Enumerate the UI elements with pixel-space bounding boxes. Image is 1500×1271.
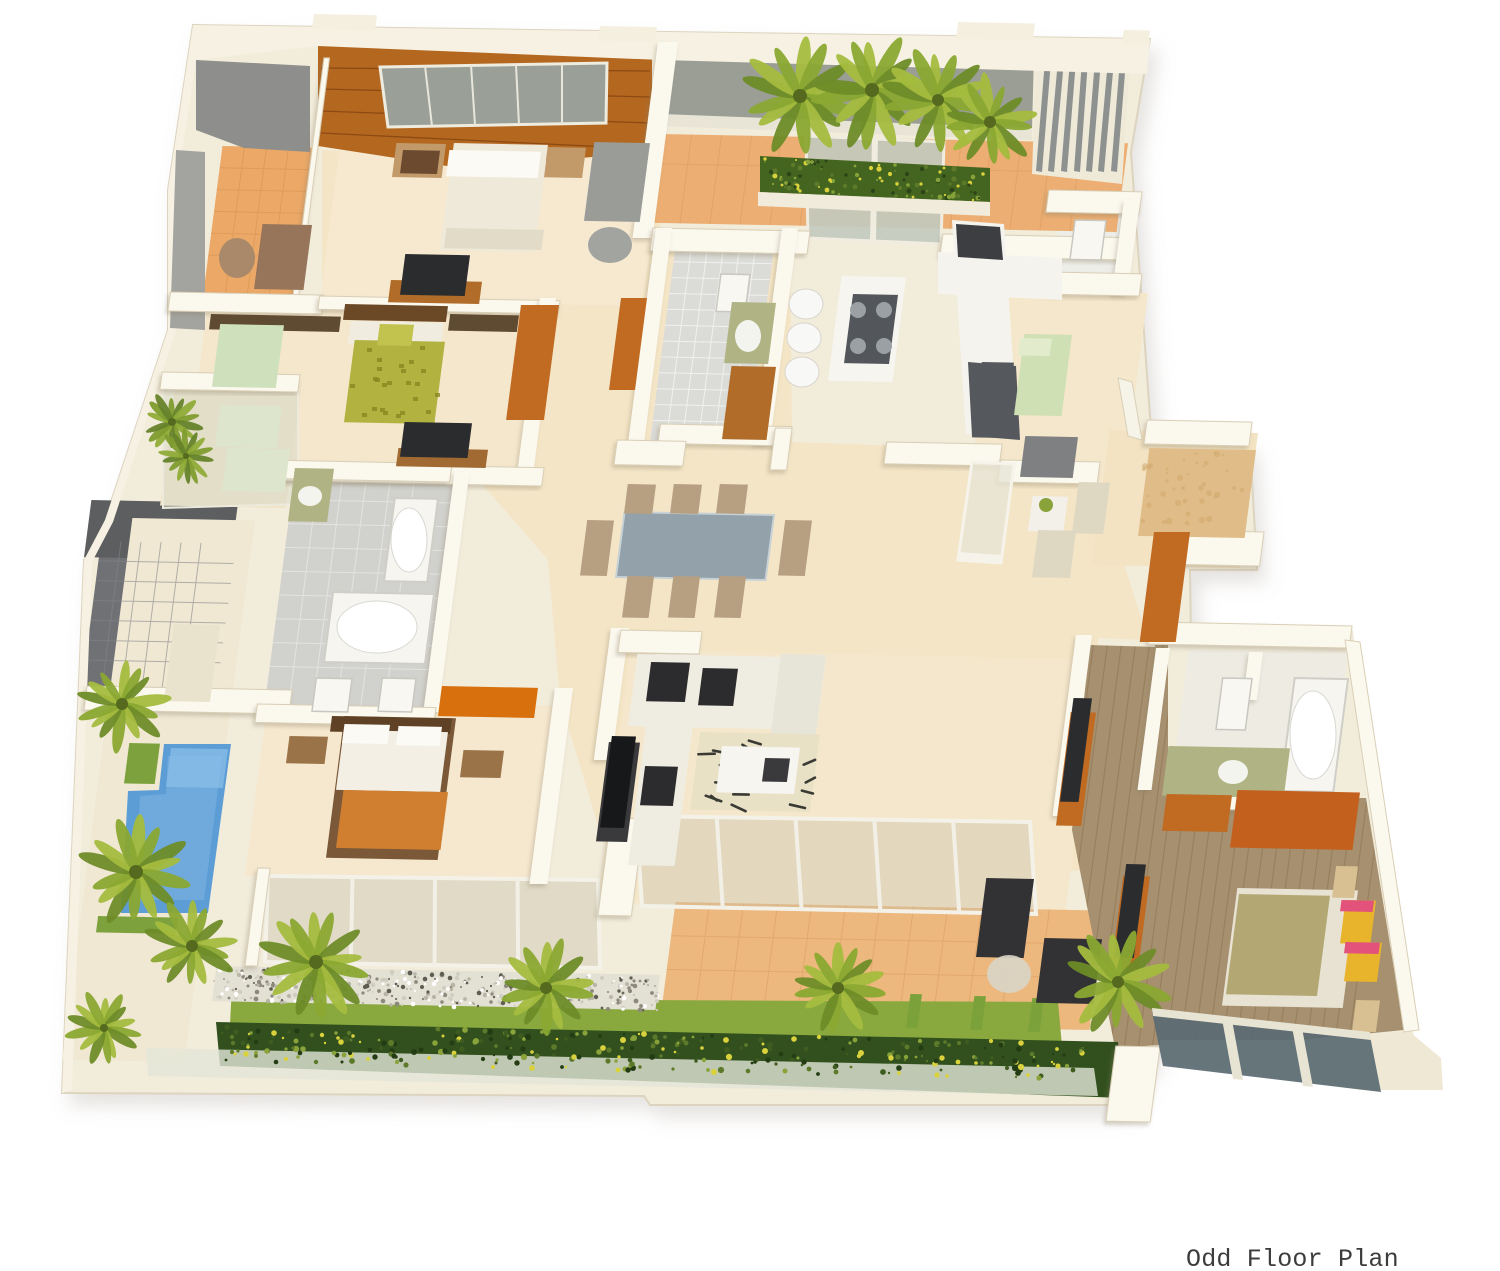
svg-text:Odd Floor Plan: Odd Floor Plan: [1186, 1245, 1399, 1271]
